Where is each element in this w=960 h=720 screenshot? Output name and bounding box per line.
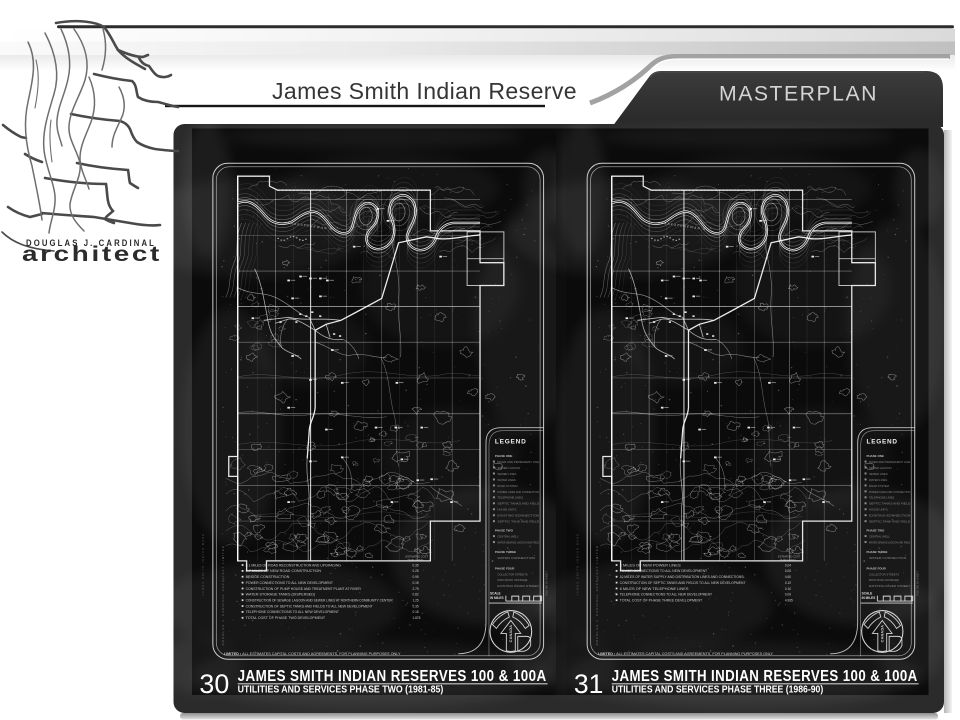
svg-text:CONSTRUCTION OF SEWAGE LAGOO: CONSTRUCTION OF SEWAGE LAGOON AND SEWER … (246, 598, 394, 602)
svg-text:4.60: 4.60 (785, 575, 791, 579)
svg-text:POWER CONNECTIONS TO ALL NE: POWER CONNECTIONS TO ALL NEW DEVELOPMENT (620, 569, 708, 573)
svg-text:0.7 MILES OF NEW ROAD CONSTR: 0.7 MILES OF NEW ROAD CONSTRUCTION (246, 569, 322, 573)
svg-text:2 MILES OF NEW POWER LINES: 2 MILES OF NEW POWER LINES (620, 563, 681, 567)
svg-text:6 MILES OF NEW TELEPHONE: 6 MILES OF NEW TELEPHONE LINES (620, 587, 689, 591)
svg-text:0.04: 0.04 (785, 563, 791, 567)
svg-text:0.10: 0.10 (785, 587, 791, 591)
svg-text:LIMITED • ALL ESTIMATES CAPIT: LIMITED • ALL ESTIMATES CAPITAL COSTS AN… (598, 652, 774, 656)
svg-text:CONSTRUCTION OF PUMP HOUSE A: CONSTRUCTION OF PUMP HOUSE AND TREATMENT… (246, 587, 362, 591)
svg-text:UTILITIES AND SERVICES PHA: UTILITIES AND SERVICES PHASE THREE (1986… (612, 684, 823, 695)
svg-text:James Smith Indian Reserve: James Smith Indian Reserve (272, 78, 577, 104)
svg-text:WATER STORAGE TANKS (DISPER: WATER STORAGE TANKS (DISPERSED) (246, 593, 316, 597)
svg-text:TELEPHONE CONNECTIONS TO ALL: TELEPHONE CONNECTIONS TO ALL NEW DEVELOP… (246, 610, 339, 614)
svg-text:ESTIMATED COST: ESTIMATED COST (406, 554, 429, 558)
svg-text:($ MILLIONS): ($ MILLIONS) (780, 558, 796, 562)
svg-text:($ MILLIONS): ($ MILLIONS) (408, 558, 424, 562)
svg-text:10 MILES OF WATER SUPPLY AN: 10 MILES OF WATER SUPPLY AND DISTRIBUTIO… (620, 575, 744, 579)
svg-text:POWER CONNECTIONS TO ALL NEW: POWER CONNECTIONS TO ALL NEW DEVELOPMENT (246, 581, 333, 585)
svg-text:2.75: 2.75 (412, 587, 418, 591)
svg-text:0.15: 0.15 (412, 581, 418, 585)
svg-text:TOTAL COST OF PHASE THREE: TOTAL COST OF PHASE THREE DEVELOPMENT (620, 598, 703, 602)
svg-text:0.35: 0.35 (412, 563, 418, 567)
svg-text:JAMES SMITH INDIAN RESERVES: JAMES SMITH INDIAN RESERVES 100 & 100A (238, 668, 547, 685)
svg-text:0.18: 0.18 (412, 610, 418, 614)
svg-text:0.05: 0.05 (785, 569, 791, 573)
svg-text:TELEPHONE CONNECTIONS TO ALL: TELEPHONE CONNECTIONS TO ALL NEW DEVELOP… (620, 593, 713, 597)
svg-text:BRIDGE CONSTRUCTION: BRIDGE CONSTRUCTION (246, 575, 291, 579)
svg-text:MASTERPLAN: MASTERPLAN (719, 83, 878, 106)
svg-text:1.878: 1.878 (412, 616, 420, 620)
svg-text:0.09: 0.09 (785, 593, 791, 597)
svg-text:CONSTRUCTION OF SEPTIC TANK: CONSTRUCTION OF SEPTIC TANKS AND FIELDS … (246, 604, 373, 608)
svg-text:8.1 MILES OF ROAD RECONSTRUC: 8.1 MILES OF ROAD RECONSTRUCTION AND UPG… (246, 563, 342, 567)
svg-text:architect: architect (22, 243, 162, 266)
svg-text:ESTIMATED COST: ESTIMATED COST (778, 554, 801, 558)
svg-text:0.82: 0.82 (412, 593, 418, 597)
svg-text:31: 31 (574, 669, 604, 699)
svg-text:TOTAL COST OF PHASE TWO DE: TOTAL COST OF PHASE TWO DEVELOPMENT (246, 616, 326, 620)
svg-text:JAMES SMITH INDIAN RESERVES: JAMES SMITH INDIAN RESERVES 100 & 100A (612, 668, 918, 685)
svg-text:4.995: 4.995 (785, 598, 793, 602)
svg-text:0.95: 0.95 (412, 575, 418, 579)
svg-text:0.35: 0.35 (412, 604, 418, 608)
svg-text:1.25: 1.25 (412, 598, 418, 602)
svg-text:30: 30 (199, 669, 229, 699)
svg-text:CONSTRUCTION OF SEPTIC TANK: CONSTRUCTION OF SEPTIC TANKS AND FIELDS … (620, 581, 746, 585)
svg-text:0.12: 0.12 (785, 581, 791, 585)
svg-text:0.28: 0.28 (412, 569, 418, 573)
svg-text:LIMITED • ALL ESTIMATES CAPIT: LIMITED • ALL ESTIMATES CAPITAL COSTS AN… (224, 652, 402, 656)
svg-text:UTILITIES AND SERVICES PHA: UTILITIES AND SERVICES PHASE TWO (1981-8… (238, 685, 444, 696)
